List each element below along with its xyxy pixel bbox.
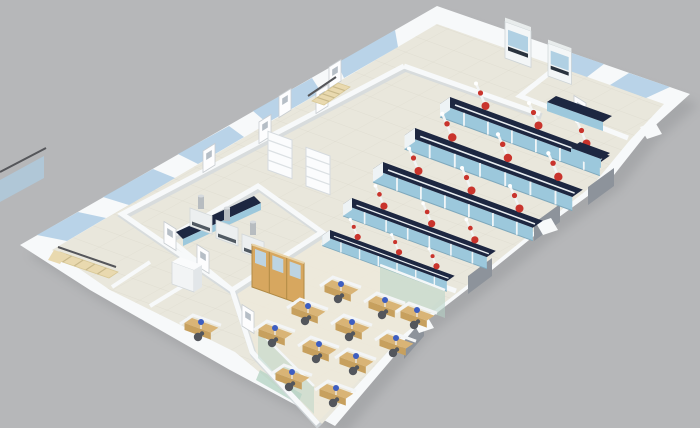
- floorplan-render: [0, 0, 700, 428]
- render-canvas: [0, 0, 700, 428]
